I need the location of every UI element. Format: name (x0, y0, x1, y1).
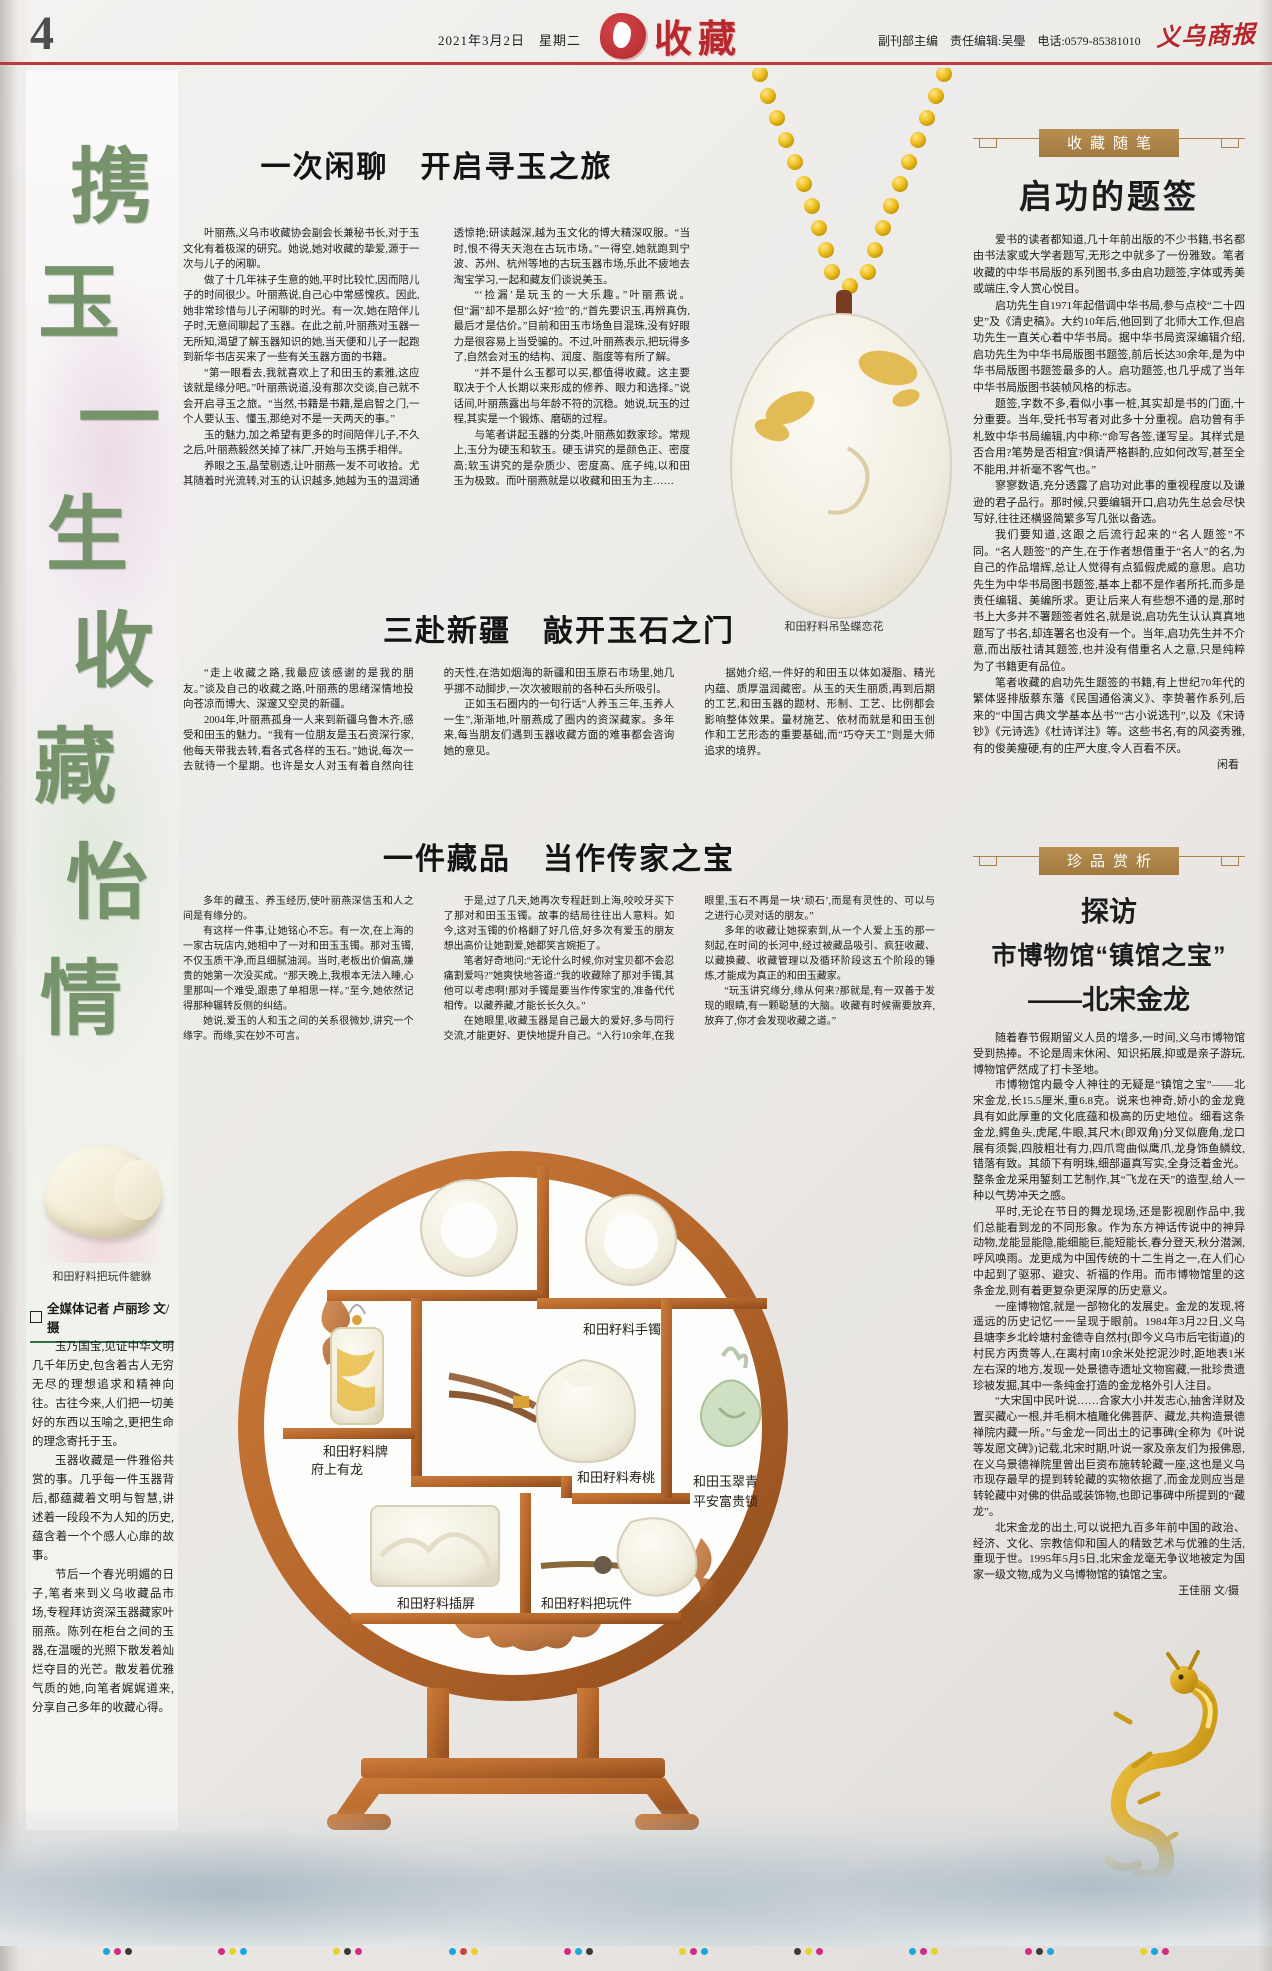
calligraphy-char: 玉 (38, 246, 178, 362)
calligraphy-char: 情 (40, 942, 178, 1058)
paragraph: 有这样一件事,让她铭心不忘。有一次,在上海的一家古玩店内,她相中了一对和田玉玉镯… (183, 924, 414, 1014)
paragraph: 节后一个春光明媚的日子,笔者来到义乌收藏品市场,专程拜访资深玉器藏家叶丽燕。陈列… (32, 1566, 174, 1718)
treasure-body: 随着春节假期留义人员的增多,一时间,义乌市博物馆受到热捧。不论是周末休闲、知识拓… (973, 1031, 1245, 1663)
section-title: 收藏 (654, 8, 742, 63)
paragraph: 北宋金龙的出土,可以说把九百多年前中国的政治、经济、文化、宗教信仰和国人的精致艺… (973, 1521, 1245, 1584)
article-title: 一件藏品 当作传家之宝 (183, 834, 935, 878)
article-xinjiang-trips: 三赴新疆 敲开玉石之门 “走上收藏之路,我最应该感谢的是我的朋友。”谈及自己的收… (183, 606, 935, 842)
landscape-watermark (0, 1806, 1272, 1946)
paragraph: 玉器收藏是一件雅俗共赏的事。几乎每一件玉器背后,都蕴藏着文明与智慧,讲述着一段段… (32, 1452, 174, 1566)
essay-author: 闲看 (973, 757, 1245, 773)
color-dot-cluster (1025, 1948, 1054, 1955)
caption-plaque-line1: 和田籽料牌 (323, 1444, 388, 1459)
ornament-line (1179, 138, 1245, 149)
treasure-title-line3: ——北宋金龙 (973, 978, 1245, 1017)
article-title: 一次闲聊 开启寻玉之旅 (183, 142, 690, 186)
treasure-ornament-header: 珍品赏析 (973, 848, 1245, 874)
color-dot-cluster (909, 1948, 938, 1955)
article-body: 多年的藏玉、养玉经历,使叶丽燕深信玉和人之间是有缘分的。 有这样一件事,让她铭心… (183, 894, 935, 1112)
essay-body: 爱书的读者都知道,几十年前出版的不少书籍,书名都由书法家或大学者题写,无形之中就… (973, 232, 1245, 808)
paragraph: 正如玉石圈内的一句行话“人养玉三年,玉养人一生”,渐渐地,叶丽燕成了圈内的资深藏… (444, 697, 675, 759)
color-dot-cluster (794, 1948, 823, 1955)
paragraph: 平时,无论在节日的舞龙现场,还是影视剧作品中,我们总能看到龙的不同形象。作为东方… (973, 1205, 1245, 1300)
ornament-line (973, 138, 1039, 149)
paragraph: 玉的魅力,加之希望有更多的时间陪伴儿子,不久之后,叶丽燕毅然关掉了袜厂,开始与玉… (183, 428, 420, 459)
essay-title: 启功的题签 (973, 170, 1245, 218)
newspaper-page: 4 2021年3月2日 星期二 收藏 副刊部主编 责任编辑:吴璺 电话:0579… (0, 0, 1272, 1971)
ornament-line (1179, 856, 1245, 867)
paragraph: 与笔者讲起玉器的分类,叶丽燕如数家珍。常规上,玉分为硬玉和软玉。硬玉讲究的是颜色… (454, 428, 691, 490)
calligraphy-char: 生 (46, 478, 178, 594)
essay-section-badge: 收藏随笔 (1039, 129, 1179, 157)
paragraph: 她说,爱玉的人和玉之间的关系很微妙,讲究一个缘字。而缘,实在妙不可言。 (183, 1014, 414, 1044)
paragraph: “大宋国中民叶说……合家大小并发志心,抽舍洋财及置买藏心一根,并毛桐木植雕化佛菩… (973, 1394, 1245, 1520)
paragraph: “并不是什么玉都可以买,都值得收藏。这主要取决于个人长期以来形成的修养、眼力和选… (454, 366, 691, 428)
reporter-byline: 全媒体记者 卢丽珍 文/摄 (30, 1298, 174, 1343)
calligraphy-char: 一 (78, 362, 178, 478)
color-dot-cluster (679, 1948, 708, 1955)
paragraph: 启功先生自1971年起借调中华书局,参与点校“二十四史”及《清史稿》。大约10年… (973, 298, 1245, 396)
jade-screen-plaque (371, 1506, 499, 1586)
page-number: 4 (30, 6, 54, 61)
treasure-title-line2: 市博物馆“镇馆之宝” (973, 936, 1245, 972)
article-body: “走上收藏之路,我最应该感谢的是我的朋友。”谈及自己的收藏之路,叶丽燕的思绪深情… (183, 666, 935, 842)
article-title: 三赴新疆 敲开玉石之门 (183, 606, 935, 650)
paragraph: “第一眼看去,我就喜欢上了和田玉的素雅,这应该就是缘分吧。”叶丽燕说道,没有那次… (183, 366, 420, 428)
color-dot-cluster (103, 1948, 132, 1955)
newspaper-masthead: 义乌商报 (1155, 14, 1256, 52)
dragon-head (1168, 1652, 1212, 1700)
vertical-calligraphy: 携 玉 一 生 收 藏 怡 情 (26, 130, 178, 1058)
jade-carving-shape (44, 1146, 160, 1238)
bead-strand-left (752, 68, 840, 280)
jade-display-shelf-photo: 和田籽料手镯 和田籽料牌 府上有龙 和田籽料寿桃 (231, 1108, 795, 1856)
header-rule (0, 62, 1272, 65)
article-chat-journey: 一次闲聊 开启寻玉之旅 叶丽燕,义乌市收藏协会副会长兼秘书长,对于玉文化有着极深… (183, 142, 690, 608)
paragraph: “走上收藏之路,我最应该感谢的是我的朋友。”谈及自己的收藏之路,叶丽燕的思绪深情… (183, 666, 414, 713)
paragraph: 笔者收藏的启功先生题签的书籍,有上世纪70年代的繁体竖排版蔡东藩《民国通俗演义》… (973, 675, 1245, 757)
treasure-author: 王佳丽 文/摄 (973, 1584, 1245, 1600)
left-decorative-strip: 携 玉 一 生 收 藏 怡 情 和田籽料把玩件貔貅 全媒体记者 卢丽珍 文/摄 … (26, 70, 178, 1830)
header-date: 2021年3月2日 星期二 (438, 30, 581, 49)
color-dot-cluster (1140, 1948, 1169, 1955)
calligraphy-char: 怡 (66, 826, 178, 942)
paragraph: 随着春节假期留义人员的增多,一时间,义乌市博物馆受到热捧。不论是周末休闲、知识拓… (973, 1031, 1245, 1078)
section-logo: 收藏 (600, 8, 742, 63)
ornament-line (973, 856, 1039, 867)
shelf-graphic: 和田籽料手镯 和田籽料牌 府上有龙 和田籽料寿桃 (231, 1108, 795, 1856)
byline-square-icon (30, 1311, 42, 1323)
editor-line: 副刊部主编 责任编辑:吴璺 电话:0579-85381010 (878, 32, 1141, 49)
paragraph: 市博物馆内最令人神往的无疑是“镇馆之宝”——北宋金龙,长15.5厘米,重6.8克… (973, 1078, 1245, 1204)
jade-pixiu-photo (32, 1128, 172, 1263)
caption-lock-line1: 和田玉翠青 (693, 1474, 758, 1489)
treasure-section-badge: 珍品赏析 (1039, 847, 1179, 875)
paragraph: “‘捡漏’是玩玉的一大乐趣。”叶丽燕说。但“漏”却不是那么好“捡”的,“首先要识… (454, 288, 691, 366)
paragraph: 多年的收藏让她探索到,从一个人爱上玉的那一刻起,在时间的长河中,经过被藏品吸引、… (704, 924, 935, 984)
essay-ornament-header: 收藏随笔 (973, 130, 1245, 156)
calligraphy-char: 收 (72, 594, 178, 710)
jade-photo-caption: 和田籽料把玩件貔貅 (26, 1268, 178, 1284)
pendant-necklace-graphic (698, 68, 970, 634)
caption-bangles: 和田籽料手镯 (583, 1322, 661, 1337)
byline-text: 全媒体记者 卢丽珍 文/摄 (47, 1298, 174, 1336)
jade-disc (731, 314, 951, 618)
paragraph: 叶丽燕,义乌市收藏协会副会长兼秘书长,对于玉文化有着极深的研究。她说,她对收藏的… (183, 226, 420, 273)
caption-lock-line2: 平安富贵锁 (693, 1494, 758, 1509)
article-family-heirloom: 一件藏品 当作传家之宝 多年的藏玉、养玉经历,使叶丽燕深信玉和人之间是有缘分的。… (183, 834, 935, 1112)
jade-pendant-photo: 和田籽料吊坠蝶恋花 (698, 68, 970, 634)
article-body: 叶丽燕,义乌市收藏协会副会长兼秘书长,对于玉文化有着极深的研究。她说,她对收藏的… (183, 226, 690, 608)
paragraph: 题签,字数不多,看似小事一桩,其实却是书的门面,十分重要。当年,受托书写者对此多… (973, 396, 1245, 478)
paragraph: 寥寥数语,充分透露了启功对此事的重视程度以及谦逊的君子品行。那时候,只要编辑开口… (973, 478, 1245, 527)
paragraph: 于是,过了几天,她再次专程赶到上海,咬咬牙买下了那对和田玉玉镯。故事的结局往往出… (444, 894, 675, 954)
paragraph: 爱书的读者都知道,几十年前出版的不少书籍,书名都由书法家或大学者题写,无形之中就… (973, 232, 1245, 298)
caption-screen: 和田籽料插屏 (397, 1596, 475, 1611)
print-registration-marks (0, 1942, 1272, 1960)
color-dot-cluster (333, 1948, 362, 1955)
paragraph: 多年的藏玉、养玉经历,使叶丽燕深信玉和人之间是有缘分的。 (183, 894, 414, 924)
intro-column: 玉乃国宝,见证中华文明几千年历史,包含着古人无穷无尽的理想追求和精神向往。古往今… (32, 1338, 174, 1838)
paragraph: 据她介绍,一件好的和田玉以体如凝脂、精光内蕴、质厚温润藏密。从玉的天生丽质,再到… (704, 666, 935, 759)
paragraph: 玉乃国宝,见证中华文明几千年历史,包含着古人无穷无尽的理想追求和精神向往。古往今… (32, 1338, 174, 1452)
paragraph: “玩玉讲究缘分,缘从何来?那就是,有一双善于发现的眼睛,有一颗聪慧的大脑。收藏有… (704, 984, 935, 1029)
paragraph: 做了十几年袜子生意的她,平时比较忙,因而陪儿子的时间很少。叶丽燕说,自己心中常感… (183, 273, 420, 366)
paragraph: 笔者好奇地问:“无论什么时候,你对宝贝都不会忍痛割爱吗?”她爽快地答道:“我的收… (444, 954, 675, 1014)
shelf-backboard (263, 1176, 763, 1676)
caption-plaque-line2: 府上有龙 (311, 1462, 363, 1477)
paragraph: 我们要知道,这跟之后流行起来的“名人题签”不同。“名人题签”的产生,在于作者想借… (973, 527, 1245, 675)
caption-hand-piece: 和田籽料把玩件 (541, 1596, 632, 1611)
caption-peach: 和田籽料寿桃 (577, 1470, 655, 1485)
calligraphy-char: 携 (70, 130, 178, 246)
color-dot-cluster (449, 1948, 478, 1955)
color-dot-cluster (564, 1948, 593, 1955)
paragraph: 一座博物馆,就是一部物化的发展史。金龙的发现,将遥远的历史记忆一一呈现于眼前。1… (973, 1300, 1245, 1395)
ink-splash-icon (600, 13, 646, 59)
treasure-title-line1: 探访 (973, 890, 1245, 930)
right-column: 收藏随笔 启功的题签 爱书的读者都知道,几十年前出版的不少书籍,书名都由书法家或… (973, 130, 1245, 1663)
color-dot-cluster (218, 1948, 247, 1955)
bead-strand-right (842, 68, 952, 294)
calligraphy-char: 藏 (34, 710, 178, 826)
